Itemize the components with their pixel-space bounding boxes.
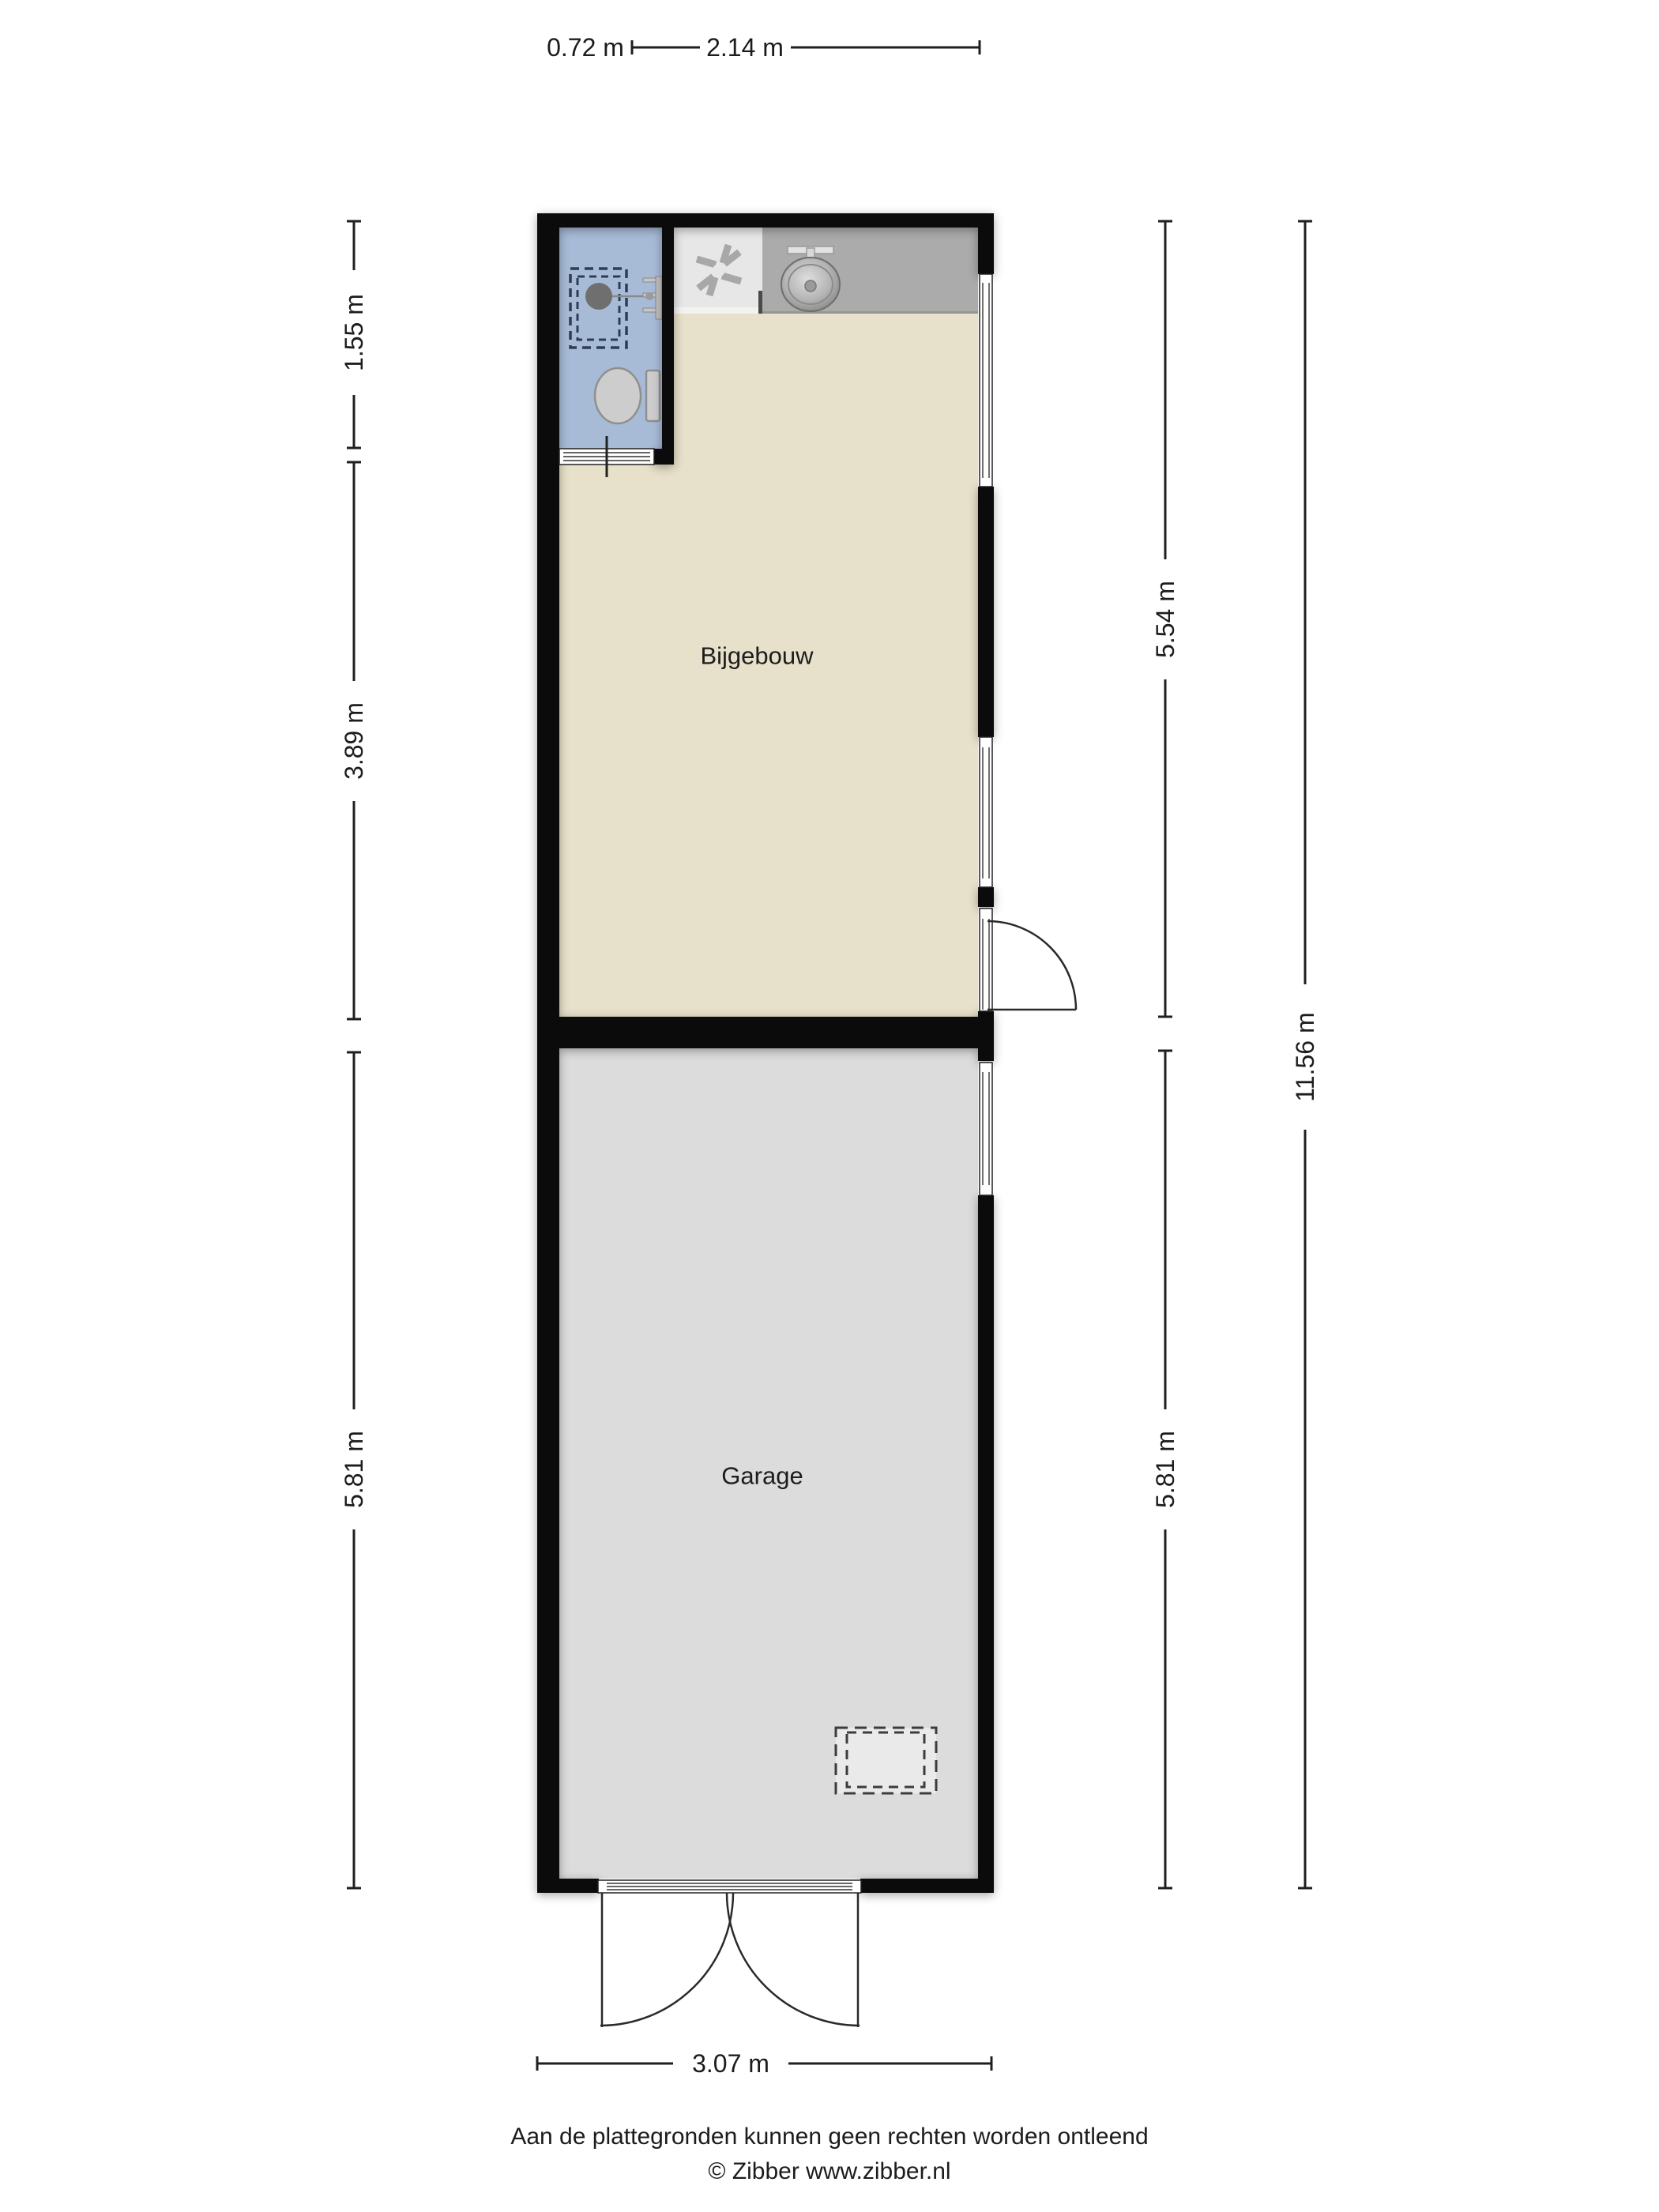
wall-left bbox=[537, 213, 559, 1893]
dim-label-left-2: 3.89 m bbox=[340, 702, 368, 780]
room-label-garage: Garage bbox=[721, 1462, 803, 1490]
garage-door-arc-left bbox=[600, 1893, 733, 2026]
door-right-leaf-slot bbox=[980, 908, 992, 1011]
floorplan-drawing: 0.72 m 2.14 m 1.55 m 3.89 m 5.81 m 5.54 … bbox=[0, 0, 1659, 2212]
door-arc-right bbox=[987, 921, 1076, 1010]
garage-hatch-icon bbox=[836, 1728, 936, 1793]
dim-left bbox=[347, 221, 361, 1888]
floors bbox=[559, 228, 978, 1879]
shower-drain bbox=[585, 283, 612, 310]
garage-double-door bbox=[600, 1893, 860, 2027]
footer: Aan de plattegronden kunnen geen rechten… bbox=[510, 2124, 1148, 2184]
wall-right-seg3 bbox=[978, 887, 994, 907]
garage-door-arc-right bbox=[727, 1893, 860, 2026]
cabinet-front-edge bbox=[674, 307, 762, 314]
room-label-bijgebouw: Bijgebouw bbox=[700, 642, 814, 670]
cabinet-divider bbox=[758, 291, 762, 314]
dim-label-right-total: 11.56 m bbox=[1291, 1012, 1319, 1101]
dim-label-right-1: 5.54 m bbox=[1151, 581, 1179, 658]
toilet-icon bbox=[595, 368, 660, 423]
window-right-2 bbox=[980, 737, 992, 887]
dim-right-inner bbox=[1158, 221, 1172, 1888]
bathroom-wall bbox=[662, 228, 674, 449]
floorplan-page: 0.72 m 2.14 m 1.55 m 3.89 m 5.81 m 5.54 … bbox=[0, 0, 1659, 2212]
footer-copyright: © Zibber www.zibber.nl bbox=[708, 2158, 950, 2184]
counter-edge-shadow bbox=[762, 311, 978, 314]
window-garage bbox=[980, 1063, 992, 1195]
dim-label-left-1: 1.55 m bbox=[340, 294, 368, 371]
wall-bottom-right bbox=[860, 1879, 994, 1893]
wall-right-seg1 bbox=[978, 213, 994, 274]
dim-label-left-3: 5.81 m bbox=[340, 1431, 368, 1508]
wall-right-seg5 bbox=[978, 1195, 994, 1893]
window-right-1 bbox=[980, 274, 992, 487]
dim-label-top-left: 0.72 m bbox=[547, 33, 624, 62]
dim-label-right-2: 5.81 m bbox=[1151, 1431, 1179, 1508]
wall-top bbox=[537, 213, 994, 228]
garage-door-threshold bbox=[598, 1880, 861, 1893]
bijgebouw-entry-door bbox=[987, 921, 1076, 1010]
wall-bottom-left bbox=[537, 1879, 599, 1893]
wall-divider bbox=[537, 1017, 994, 1048]
bathroom-wall-corner bbox=[654, 449, 674, 465]
wall-right-seg2 bbox=[978, 487, 994, 737]
footer-disclaimer: Aan de plattegronden kunnen geen rechten… bbox=[510, 2124, 1148, 2150]
dim-label-top: 2.14 m bbox=[706, 33, 784, 62]
dim-label-bottom: 3.07 m bbox=[692, 2049, 769, 2078]
dim-top bbox=[632, 40, 980, 55]
